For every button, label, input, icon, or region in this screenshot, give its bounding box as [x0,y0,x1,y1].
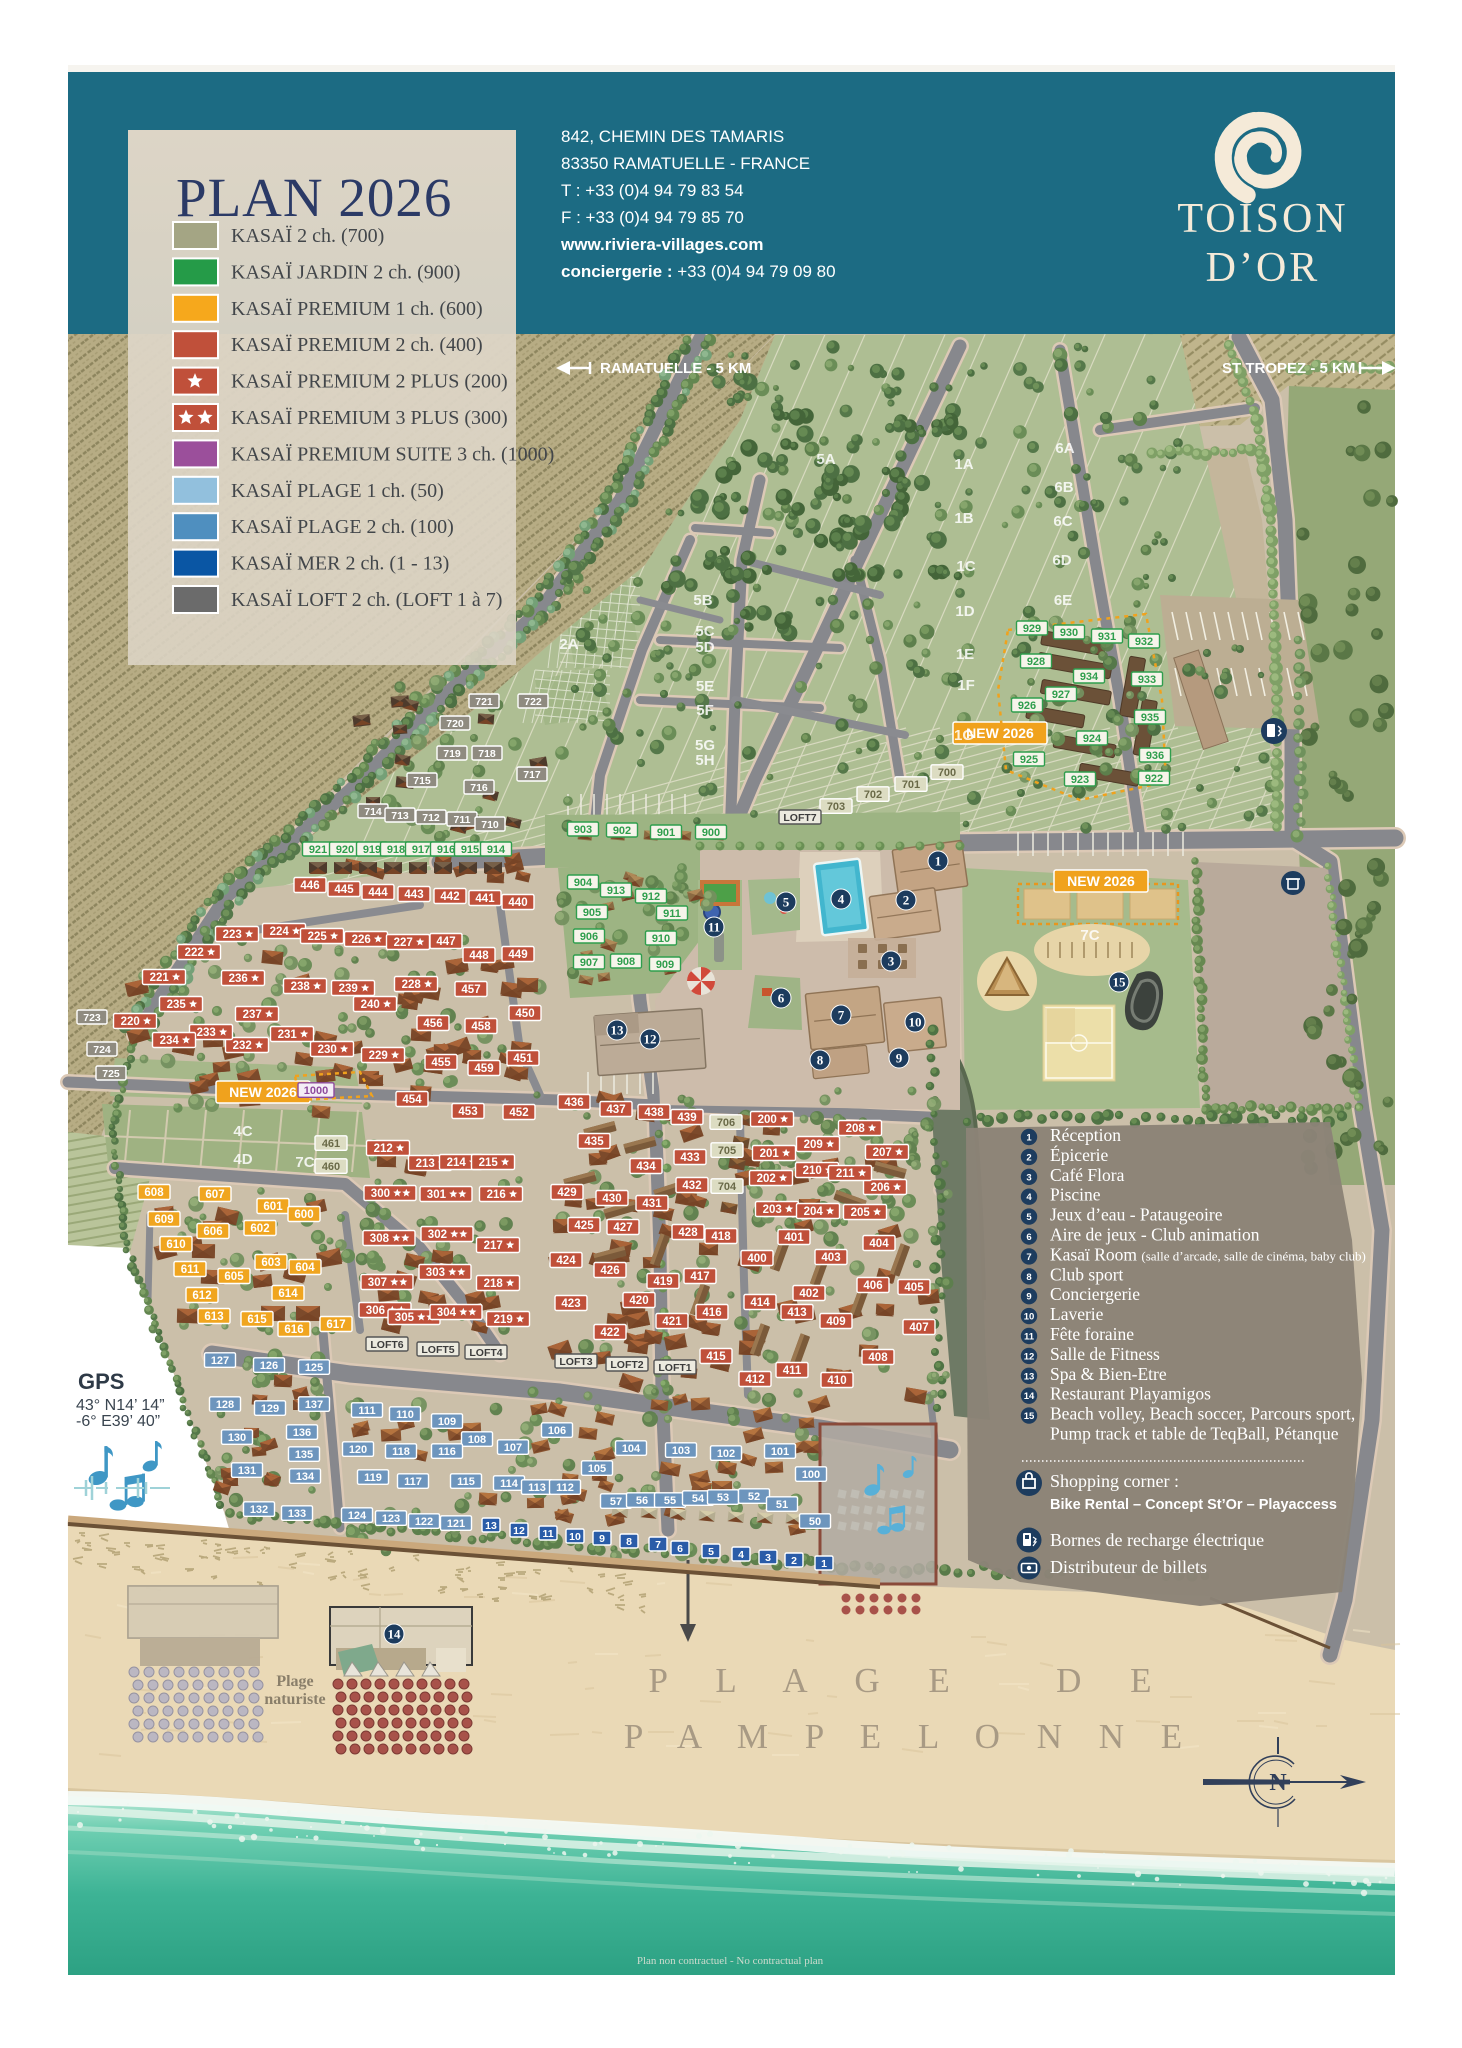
svg-text:303: 303 [426,1267,445,1279]
svg-text:5: 5 [783,895,790,910]
svg-text:717: 717 [523,769,541,781]
svg-text:6: 6 [778,991,785,1006]
svg-text:216: 216 [487,1189,506,1201]
svg-text:605: 605 [224,1271,244,1283]
svg-text:136: 136 [293,1427,311,1439]
svg-text:706: 706 [717,1117,735,1129]
svg-text:918: 918 [387,844,405,856]
svg-text:451: 451 [513,1053,533,1065]
svg-text:607: 607 [205,1189,224,1201]
svg-text:Épicerie: Épicerie [1050,1145,1109,1165]
svg-text:400: 400 [747,1253,766,1265]
svg-text:7: 7 [1026,1252,1031,1263]
svg-text:200: 200 [758,1114,777,1126]
svg-text:226: 226 [352,934,371,946]
svg-text:715: 715 [413,775,431,787]
svg-text:447: 447 [436,936,455,948]
svg-text:608: 608 [144,1187,164,1199]
svg-text:716: 716 [470,782,488,794]
svg-text:606: 606 [203,1226,222,1238]
svg-text:207: 207 [873,1147,892,1159]
svg-text:9: 9 [896,1051,903,1066]
svg-text:12: 12 [644,1032,657,1047]
svg-text:926: 926 [1018,700,1036,712]
svg-text:13: 13 [611,1023,625,1038]
svg-text:601: 601 [263,1201,283,1213]
svg-text:702: 702 [864,789,882,801]
svg-text:206: 206 [871,1182,890,1194]
svg-text:444: 444 [368,887,388,899]
svg-text:9: 9 [1026,1292,1031,1303]
svg-text:Spa & Bien-Etre: Spa & Bien-Etre [1050,1364,1167,1384]
svg-text:Réception: Réception [1050,1125,1121,1145]
svg-text:720: 720 [446,718,464,730]
svg-text:434: 434 [636,1161,656,1173]
svg-text:927: 927 [1052,689,1070,701]
svg-text:1: 1 [1026,1133,1032,1144]
svg-text:450: 450 [515,1008,534,1020]
svg-text:723: 723 [83,1012,101,1024]
svg-text:Pump track et table de TeqBall: Pump track et table de TeqBall, Pétanque [1050,1424,1339,1444]
svg-text:905: 905 [583,907,601,919]
svg-text:125: 125 [305,1362,323,1374]
svg-text:602: 602 [250,1223,269,1235]
svg-text:232: 232 [233,1040,252,1052]
svg-text:15: 15 [1113,975,1127,990]
svg-text:412: 412 [745,1374,764,1386]
svg-text:13: 13 [1024,1371,1035,1382]
svg-text:713: 713 [391,810,409,822]
svg-text:217: 217 [484,1240,503,1252]
svg-text:913: 913 [607,885,625,897]
svg-text:440: 440 [508,897,527,909]
svg-text:446: 446 [300,880,319,892]
svg-text:419: 419 [653,1276,672,1288]
svg-text:703: 703 [827,801,845,813]
svg-text:925: 925 [1020,754,1038,766]
svg-text:439: 439 [677,1112,696,1124]
svg-text:910: 910 [652,933,670,945]
svg-text:3: 3 [1026,1172,1031,1183]
svg-text:427: 427 [613,1222,632,1234]
svg-text:922: 922 [1145,773,1163,785]
svg-text:710: 710 [481,819,499,831]
svg-text:1: 1 [935,854,942,869]
svg-text:237: 237 [243,1009,262,1021]
svg-text:449: 449 [508,949,527,961]
svg-text:436: 436 [564,1097,583,1109]
svg-text:126: 126 [260,1360,278,1372]
svg-text:424: 424 [556,1255,576,1267]
svg-text:455: 455 [431,1057,451,1069]
svg-text:2: 2 [1026,1152,1031,1163]
svg-text:722: 722 [524,696,542,708]
svg-text:128: 128 [216,1399,234,1411]
svg-text:423: 423 [561,1298,580,1310]
svg-text:426: 426 [600,1265,619,1277]
svg-text:457: 457 [461,984,480,996]
svg-text:609: 609 [154,1214,173,1226]
svg-text:210: 210 [803,1165,822,1177]
svg-text:239: 239 [339,983,358,995]
svg-text:236: 236 [229,973,248,985]
svg-text:615: 615 [247,1314,267,1326]
svg-text:418: 418 [711,1231,731,1243]
svg-text:14: 14 [388,1627,402,1642]
svg-text:617: 617 [326,1319,345,1331]
svg-text:229: 229 [369,1050,388,1062]
svg-text:307: 307 [368,1277,387,1289]
svg-text:238: 238 [291,981,311,993]
svg-text:610: 610 [166,1239,185,1251]
svg-text:220: 220 [121,1016,140,1028]
svg-text:908: 908 [617,956,635,968]
svg-text:214: 214 [447,1157,467,1169]
svg-text:405: 405 [904,1282,924,1294]
svg-text:901: 901 [657,827,675,839]
svg-text:Aire de jeux - Club animation: Aire de jeux - Club animation [1050,1225,1260,1245]
svg-text:300: 300 [371,1188,390,1200]
svg-text:201: 201 [760,1148,780,1160]
svg-text:933: 933 [1138,674,1156,686]
svg-text:701: 701 [902,779,920,791]
svg-text:304: 304 [437,1307,457,1319]
svg-text:923: 923 [1071,774,1089,786]
svg-text:417: 417 [690,1271,709,1283]
svg-text:15: 15 [1024,1411,1035,1422]
svg-text:215: 215 [479,1157,499,1169]
svg-text:604: 604 [295,1262,315,1274]
svg-text:448: 448 [469,950,489,962]
svg-text:921: 921 [309,844,327,856]
svg-text:700: 700 [938,767,956,779]
svg-text:230: 230 [318,1044,337,1056]
svg-text:456: 456 [423,1018,442,1030]
svg-text:305: 305 [395,1312,415,1324]
svg-text:240: 240 [361,999,380,1011]
svg-text:903: 903 [574,824,592,836]
svg-text:Laverie: Laverie [1050,1304,1104,1324]
svg-text:458: 458 [471,1021,491,1033]
svg-text:711: 711 [454,814,471,826]
svg-text:235: 235 [167,999,187,1011]
svg-text:10: 10 [909,1015,922,1030]
svg-text:930: 930 [1060,627,1078,639]
svg-text:203: 203 [763,1204,782,1216]
svg-text:900: 900 [702,827,720,839]
svg-text:718: 718 [478,748,496,760]
svg-text:612: 612 [192,1290,211,1302]
svg-text:6: 6 [1026,1232,1031,1243]
svg-text:425: 425 [574,1220,594,1232]
svg-text:724: 724 [93,1044,111,1056]
svg-text:705: 705 [718,1145,736,1157]
svg-text:221: 221 [150,972,170,984]
svg-text:931: 931 [1098,631,1116,643]
svg-text:225: 225 [308,931,328,943]
svg-text:233: 233 [197,1027,216,1039]
svg-text:301: 301 [427,1189,447,1201]
svg-text:407: 407 [909,1322,928,1334]
svg-text:902: 902 [613,825,631,837]
svg-text:929: 929 [1023,623,1041,635]
svg-text:712: 712 [422,812,440,824]
svg-text:222: 222 [185,947,204,959]
svg-text:421: 421 [662,1316,682,1328]
svg-text:302: 302 [428,1229,447,1241]
svg-text:920: 920 [336,844,354,856]
svg-text:NEW 2026: NEW 2026 [1067,873,1135,889]
svg-text:719: 719 [443,748,461,760]
svg-text:8: 8 [817,1053,824,1068]
svg-text:213: 213 [416,1158,435,1170]
svg-text:916: 916 [437,844,455,856]
svg-text:430: 430 [602,1193,621,1205]
svg-text:Shopping corner :: Shopping corner : [1050,1471,1179,1491]
svg-text:12: 12 [1024,1351,1035,1362]
svg-text:Restaurant Playamigos: Restaurant Playamigos [1050,1384,1211,1404]
svg-text:725: 725 [102,1068,120,1080]
svg-text:209: 209 [804,1139,823,1151]
svg-text:614: 614 [278,1288,298,1300]
svg-text:932: 932 [1135,636,1153,648]
svg-text:453: 453 [458,1106,477,1118]
svg-text:3: 3 [888,954,895,969]
svg-text:420: 420 [629,1295,648,1307]
svg-text:443: 443 [404,889,423,901]
svg-text:11: 11 [1024,1332,1035,1343]
svg-text:721: 721 [475,696,493,708]
svg-text:404: 404 [869,1238,889,1250]
svg-text:414: 414 [750,1297,770,1309]
svg-text:234: 234 [160,1035,180,1047]
svg-text:Bornes de recharge électrique: Bornes de recharge électrique [1050,1530,1264,1550]
svg-text:915: 915 [461,844,479,856]
svg-text:137: 137 [305,1399,323,1411]
svg-text:415: 415 [706,1351,726,1363]
svg-text:917: 917 [412,844,430,856]
svg-text:231: 231 [278,1029,298,1041]
svg-text:603: 603 [261,1257,280,1269]
svg-text:935: 935 [1141,712,1159,724]
svg-text:401: 401 [784,1232,804,1244]
svg-text:212: 212 [374,1143,393,1155]
svg-text:416: 416 [702,1307,721,1319]
svg-text:445: 445 [334,884,354,896]
svg-text:431: 431 [642,1198,662,1210]
svg-text:409: 409 [826,1316,845,1328]
svg-text:432: 432 [682,1180,701,1192]
svg-text:2: 2 [903,893,910,908]
svg-text:130: 130 [228,1432,246,1444]
svg-text:460: 460 [322,1161,340,1173]
svg-text:907: 907 [580,957,598,969]
svg-text:914: 914 [487,844,506,856]
svg-text:5: 5 [1026,1212,1032,1223]
svg-text:934: 934 [1080,671,1099,683]
svg-text:228: 228 [402,979,422,991]
svg-text:Distributeur de billets: Distributeur de billets [1050,1557,1207,1577]
svg-text:428: 428 [678,1227,698,1239]
svg-text:Conciergerie: Conciergerie [1050,1284,1140,1304]
svg-text:129: 129 [261,1403,279,1415]
svg-text:224: 224 [270,926,290,938]
svg-text:4: 4 [838,892,845,907]
svg-text:Café Flora: Café Flora [1050,1165,1125,1185]
svg-text:906: 906 [580,931,598,943]
svg-text:410: 410 [827,1375,846,1387]
svg-text:14: 14 [1024,1391,1035,1402]
svg-text:204: 204 [804,1206,824,1218]
svg-text:Jeux d’eau - Pataugeoire: Jeux d’eau - Pataugeoire [1050,1205,1223,1225]
svg-text:402: 402 [799,1288,818,1300]
svg-text:704: 704 [718,1181,737,1193]
svg-text:Piscine: Piscine [1050,1185,1101,1205]
svg-text:208: 208 [846,1123,866,1135]
svg-text:NEW 2026: NEW 2026 [229,1084,297,1100]
svg-text:227: 227 [394,937,413,949]
svg-text:613: 613 [204,1311,223,1323]
svg-text:11: 11 [708,920,720,935]
svg-text:459: 459 [474,1063,493,1075]
svg-text:10: 10 [1024,1312,1035,1323]
svg-text:406: 406 [863,1280,882,1292]
svg-text:912: 912 [642,891,660,903]
svg-text:441: 441 [475,893,495,905]
svg-text:919: 919 [363,844,381,856]
svg-text:127: 127 [211,1355,229,1367]
svg-text:429: 429 [557,1187,576,1199]
svg-text:308: 308 [370,1233,390,1245]
svg-text:411: 411 [783,1365,802,1377]
svg-text:8: 8 [1026,1272,1031,1283]
svg-text:435: 435 [584,1136,604,1148]
svg-text:911: 911 [663,908,681,920]
svg-text:218: 218 [484,1278,504,1290]
svg-text:433: 433 [680,1152,699,1164]
svg-text:600: 600 [294,1209,313,1221]
svg-text:461: 461 [322,1138,340,1150]
svg-text:909: 909 [656,959,674,971]
svg-text:NEW 2026: NEW 2026 [966,725,1034,741]
svg-text:Salle de Fitness: Salle de Fitness [1050,1344,1160,1364]
svg-text:611: 611 [181,1264,200,1276]
svg-text:131: 131 [238,1465,256,1477]
svg-text:438: 438 [644,1107,664,1119]
svg-text:202: 202 [757,1173,776,1185]
svg-text:904: 904 [574,877,593,889]
svg-text:616: 616 [284,1324,303,1336]
svg-text:408: 408 [868,1352,888,1364]
svg-text:928: 928 [1027,656,1045,668]
svg-text:437: 437 [606,1104,625,1116]
svg-text:211: 211 [836,1168,855,1180]
svg-text:936: 936 [1146,750,1164,762]
svg-text:422: 422 [600,1327,619,1339]
svg-text:306: 306 [366,1305,385,1317]
svg-text:219: 219 [494,1314,513,1326]
svg-text:924: 924 [1083,733,1102,745]
svg-text:714: 714 [364,806,382,818]
svg-text:Beach volley, Beach soccer, Pa: Beach volley, Beach soccer, Parcours spo… [1050,1404,1355,1424]
svg-text:205: 205 [851,1207,871,1219]
svg-text:454: 454 [402,1094,422,1106]
svg-text:452: 452 [509,1107,528,1119]
svg-text:Club sport: Club sport [1050,1264,1124,1284]
svg-text:Bike Rental – Concept St’Or –: Bike Rental – Concept St’Or – Playaccess [1050,1497,1337,1513]
svg-text:403: 403 [821,1252,840,1264]
svg-text:Fête foraine: Fête foraine [1050,1324,1134,1344]
svg-text:223: 223 [223,929,242,941]
svg-text:7: 7 [838,1008,845,1023]
svg-text:4: 4 [1026,1192,1032,1203]
svg-text:442: 442 [440,891,459,903]
svg-text:413: 413 [787,1307,806,1319]
